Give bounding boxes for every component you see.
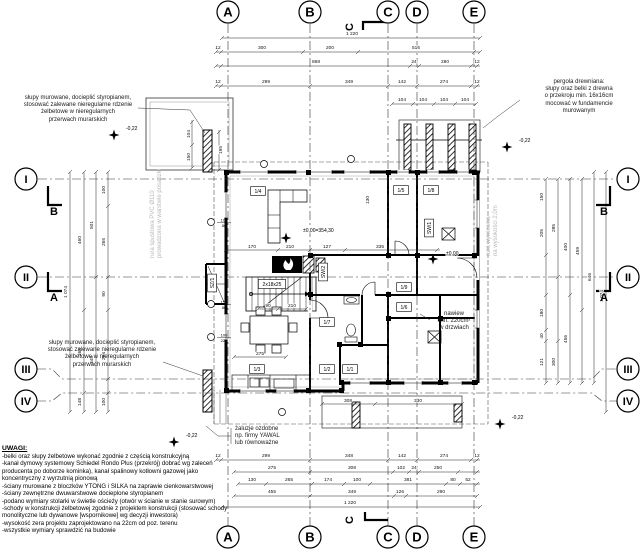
dimension-label: 12 <box>474 79 480 85</box>
dimension-label: 330 <box>414 398 422 404</box>
dimension-label: 868 <box>312 59 320 65</box>
window <box>344 170 370 174</box>
column-square <box>339 388 344 393</box>
column-square <box>386 253 391 258</box>
dimension-label: 40 <box>539 333 545 339</box>
gridline-IV <box>37 393 617 401</box>
svg-text:±0,00=354,30: ±0,00=354,30 <box>303 228 334 234</box>
section-letter-A: A <box>50 292 58 304</box>
svg-text:1/4: 1/4 <box>255 189 262 195</box>
dimension-label: 299 <box>262 453 270 459</box>
dimension-label: 142 <box>398 453 406 459</box>
axis-circle-D: D <box>406 1 428 23</box>
dimension-label: 174 <box>324 477 332 483</box>
axis-circle-I: I <box>15 168 37 190</box>
dimension-label: 12 <box>474 453 480 459</box>
column-square <box>472 253 477 258</box>
svg-text:80: 80 <box>222 223 227 228</box>
dimension-label: 501 <box>89 221 95 229</box>
column-square <box>308 292 313 297</box>
column-square <box>472 380 477 385</box>
note-item-1: -belki oraz słupy żelbetowe wykonać zgod… <box>2 453 234 460</box>
column-square <box>386 292 391 297</box>
window <box>404 381 422 385</box>
dimension-label: 275 <box>256 351 264 357</box>
level-marker: -0,22 <box>109 126 138 141</box>
svg-text:D: D <box>412 5 421 20</box>
annotation-pipe_right: rura wywiewnana wysokości 2,0m <box>486 160 500 256</box>
fireplace <box>272 256 325 273</box>
column-square <box>386 380 391 385</box>
svg-text:150: 150 <box>221 300 228 305</box>
svg-text:-0,22: -0,22 <box>512 415 524 421</box>
svg-text:E: E <box>470 5 479 20</box>
dimension-label: 290 <box>437 489 445 495</box>
window <box>350 381 370 385</box>
window <box>276 389 294 393</box>
dimension-label: 127 <box>323 244 331 250</box>
svg-text:-0,22: -0,22 <box>519 138 531 144</box>
column-square <box>306 170 311 175</box>
annotation-vent: nawiewmin. 220cm²w drzwiach <box>430 311 478 333</box>
room-label-SW-2: SW/2 <box>319 263 328 281</box>
svg-text:1/1: 1/1 <box>347 367 354 373</box>
note-item-2: -kanał dymowy systemowy Schiedel Rondo P… <box>2 460 234 482</box>
dimension-label: 12 <box>215 79 221 85</box>
axis-circle-C: C <box>377 1 399 23</box>
svg-text:100: 100 <box>221 333 228 338</box>
svg-text:1/7: 1/7 <box>324 320 331 326</box>
svg-text:IV: IV <box>21 396 32 408</box>
dimension-label: 349 <box>345 79 353 85</box>
kitchen-counter <box>232 375 310 390</box>
column-square <box>306 388 311 393</box>
svg-text:C: C <box>383 5 393 20</box>
svg-text:80: 80 <box>222 305 227 310</box>
svg-text:A: A <box>223 5 233 20</box>
window <box>427 170 439 174</box>
dimension-label: 460 <box>77 236 83 244</box>
annotation-pipe_left: rura spustowa PVC Ø110prowadzona w warst… <box>150 146 164 258</box>
svg-text:±0,00: ±0,00 <box>446 251 459 257</box>
dimension-label: 300 <box>258 45 266 51</box>
svg-text:1/3: 1/3 <box>254 367 261 373</box>
dimension-label: 400 <box>563 243 569 251</box>
note-item-5: -podano wymiary stolarki w świetle oście… <box>2 498 234 505</box>
dimension-label: 142 <box>398 79 406 85</box>
column-square <box>358 342 363 347</box>
dimension-label: 12 <box>474 59 480 65</box>
dimension-label: 130 <box>248 477 256 483</box>
svg-text:I: I <box>24 174 27 186</box>
annotation-pillars_top: słupy murowane, docieplić styropianem,st… <box>16 95 140 124</box>
axis-circle-D: D <box>406 526 428 548</box>
axis-circle-C: C <box>377 526 399 548</box>
svg-text:SW/2: SW/2 <box>321 266 327 278</box>
annotation-pillars_bottom: słupy murowane, docieplić styropianem,st… <box>38 340 166 369</box>
dimension-label: 104 <box>419 97 427 103</box>
column-square <box>308 253 313 258</box>
level-marker: ±0,00=354,30 <box>281 228 334 244</box>
svg-text:SW/1: SW/1 <box>427 222 433 234</box>
dimension-label: 104 <box>186 130 192 138</box>
dimension-label: 104 <box>461 97 469 103</box>
column-square <box>386 316 391 321</box>
dimension-label: 280 <box>441 59 449 65</box>
window <box>240 389 266 393</box>
dimension-label: 200 <box>326 45 334 51</box>
svg-text:1/8: 1/8 <box>428 188 435 194</box>
level-marker: -0,22 <box>502 138 531 153</box>
dimension-label: 274 <box>440 79 448 85</box>
window <box>475 200 479 228</box>
svg-text:225: 225 <box>221 338 228 343</box>
window <box>397 170 409 174</box>
svg-text:B: B <box>305 5 314 20</box>
room-label-1-9: 1/9 <box>397 283 412 292</box>
room-label-SZ-1: SZ/1 <box>208 274 217 292</box>
dimension-label: 126 <box>396 489 404 495</box>
dimension-label: 285 <box>551 224 557 232</box>
dimension-label: 170 <box>248 244 256 250</box>
axis-circle-B: B <box>299 1 321 23</box>
dimension-label: 104 <box>398 97 406 103</box>
dimension-label: 274 <box>440 453 448 459</box>
opening-marker <box>279 409 286 416</box>
room-label-SW-1: SW/1 <box>425 219 434 237</box>
level-marker: ±0,00 <box>428 251 459 265</box>
axis-circle-III: III <box>15 358 37 380</box>
window <box>448 381 462 385</box>
room-label-1-4: 1/4 <box>251 187 266 196</box>
dimension-label: 459 <box>575 247 581 255</box>
dimension-label: 90 <box>265 303 271 309</box>
dimension-label: 148 <box>77 398 83 406</box>
dimension-label: 80 <box>450 477 456 483</box>
notes-items: -belki oraz słupy żelbetowe wykonać zgod… <box>2 453 234 535</box>
svg-text:II: II <box>625 272 631 284</box>
axis-circle-E: E <box>463 526 485 548</box>
axis-circle-IV: IV <box>15 390 37 412</box>
dimension-label: 250 <box>434 465 442 471</box>
svg-text:100: 100 <box>221 218 228 223</box>
dimension-label: 102 <box>397 465 405 471</box>
dimension-label: 52 <box>465 477 471 483</box>
section-letter-C: C <box>344 23 356 31</box>
dimension-label: 348 <box>345 453 353 459</box>
dimension-label: 195 <box>218 146 224 154</box>
dimension-label: 275 <box>268 465 276 471</box>
svg-text:D: D <box>412 530 421 545</box>
axis-circle-A: A <box>217 1 239 23</box>
dimension-label: 349 <box>348 489 356 495</box>
room-labels: 1/41/51/8SW/1SW/2SZ/11/71/31/21/11/91/62… <box>208 186 439 374</box>
svg-text:II: II <box>23 272 29 284</box>
annotation-blinds: żaluzje ozdobnenp. firmy YAWALlub równow… <box>235 426 299 448</box>
dimension-label: 180 <box>539 309 545 317</box>
dimension-label: 150 <box>186 153 192 161</box>
svg-text:IV: IV <box>623 396 634 408</box>
svg-text:SZ/1: SZ/1 <box>210 278 216 289</box>
svg-text:1/6: 1/6 <box>401 305 408 311</box>
dimension-label: 299 <box>262 79 270 85</box>
svg-text:1/2: 1/2 <box>324 367 331 373</box>
room-label-1-7: 1/7 <box>320 318 335 327</box>
room-label-1-1: 1/1 <box>343 365 358 374</box>
svg-text:-0,22: -0,22 <box>186 433 198 439</box>
axis-circle-E: E <box>463 1 485 23</box>
column-square <box>337 342 342 347</box>
svg-text:III: III <box>623 364 632 376</box>
dimension-label: 1 074 <box>63 286 69 298</box>
level-markers: ±0,00=354,30±0,00-0,22-0,22-0,22-0,22 <box>109 126 531 448</box>
dimension-label: 90 <box>101 291 107 297</box>
room-label-1-6: 1/6 <box>397 303 412 312</box>
dimension-label: 516 <box>412 45 420 51</box>
dimension-label: 1 220 <box>344 500 356 506</box>
window <box>457 170 469 174</box>
column-square <box>339 380 344 385</box>
room-label-1-3: 1/3 <box>250 365 265 374</box>
column-square <box>224 170 229 175</box>
column-square <box>438 380 443 385</box>
axis-circle-IV: IV <box>617 390 639 412</box>
section-letter-B: B <box>600 206 608 218</box>
dimension-label: 646 <box>587 273 593 281</box>
axis-circle-II: II <box>15 266 37 288</box>
column-square <box>386 170 391 175</box>
svg-text:2x18x25: 2x18x25 <box>263 282 282 288</box>
section-letter-C: C <box>344 516 356 524</box>
axis-circle-III: III <box>617 358 639 380</box>
dimension-label: 100 <box>353 477 361 483</box>
section-letter-B: B <box>50 206 58 218</box>
notes-block: UWAGI: -belki oraz słupy żelbetowe wykon… <box>2 445 234 535</box>
notes-title: UWAGI: <box>2 445 234 452</box>
dimension-label: 24 <box>411 465 417 471</box>
window <box>240 170 268 174</box>
svg-text:C: C <box>383 530 393 545</box>
dimension-label: 100 <box>101 186 107 194</box>
level-marker: -0,22 <box>495 415 524 430</box>
pergola <box>396 120 482 172</box>
dining-table <box>241 307 297 353</box>
axis-circle-I: I <box>617 168 639 190</box>
room-label-1-5: 1/5 <box>394 186 409 195</box>
floor-plan-sheet: ABCDEABCDEIIIIIIIVIIIIIIIV 1 22012300200… <box>0 0 640 549</box>
note-item-7: -wysokość zera projektu zaprojektowano n… <box>2 520 234 527</box>
dimension-label: 265 <box>285 477 293 483</box>
dimension-label: 308 <box>348 465 356 471</box>
sofa <box>268 190 307 243</box>
dimension-label: 455 <box>268 489 276 495</box>
dimension-label: 210 <box>288 303 296 309</box>
svg-text:I: I <box>626 174 629 186</box>
section-letter-A: A <box>600 292 608 304</box>
column-square <box>415 253 420 258</box>
column-square <box>415 170 420 175</box>
room-label-1-2: 1/2 <box>320 365 335 374</box>
dimension-label: 381 <box>404 477 412 483</box>
dimension-label: 308 <box>344 398 352 404</box>
opening-marker <box>261 161 268 168</box>
dimension-label: 205 <box>539 229 545 237</box>
axis-circle-B: B <box>299 526 321 548</box>
dimension-label: 121 <box>539 358 545 366</box>
dimension-label: 456 <box>563 335 569 343</box>
column-square <box>472 170 477 175</box>
dimension-label: 300 <box>551 358 557 366</box>
svg-text:III: III <box>21 364 30 376</box>
dimension-label: 130 <box>365 196 371 204</box>
svg-text:E: E <box>470 530 479 545</box>
axis-circle-II: II <box>617 266 639 288</box>
dimension-label: 100 <box>101 398 107 406</box>
room-label-1-8: 1/8 <box>424 186 439 195</box>
note-item-4: -ściany zewnętrzne dwuwarstwowe docieplo… <box>2 490 234 497</box>
dimension-label: 12 <box>215 45 221 51</box>
dimension-label: 24 <box>411 59 417 65</box>
dimension-label: 210 <box>286 244 294 250</box>
dimension-label: 265 <box>101 238 107 246</box>
svg-text:B: B <box>305 530 314 545</box>
note-item-6: -schody w konstrukcji żelbetowej zgodnie… <box>2 505 234 520</box>
svg-text:1/9: 1/9 <box>401 285 408 291</box>
note-item-8: -wszystkie wymiary sprawdzić na budowie <box>2 527 234 534</box>
annotation-pergola: pergola drewniana:słupy oraz belki z dre… <box>520 79 638 115</box>
window <box>296 170 332 174</box>
dimension-label: 335 <box>376 244 384 250</box>
opening-marker <box>348 156 355 163</box>
wc-fixtures <box>344 296 359 342</box>
interior-walls <box>206 172 478 391</box>
note-item-3: -ściany murowane z bloczków YTONG i SILK… <box>2 483 234 490</box>
dimension-label: 104 <box>440 97 448 103</box>
room-label-2x18x25: 2x18x25 <box>258 280 285 289</box>
svg-text:1/5: 1/5 <box>398 188 405 194</box>
window <box>224 192 228 218</box>
column-square <box>224 388 229 393</box>
dimension-label: 150 <box>539 193 545 201</box>
svg-text:-0,22: -0,22 <box>126 126 138 132</box>
